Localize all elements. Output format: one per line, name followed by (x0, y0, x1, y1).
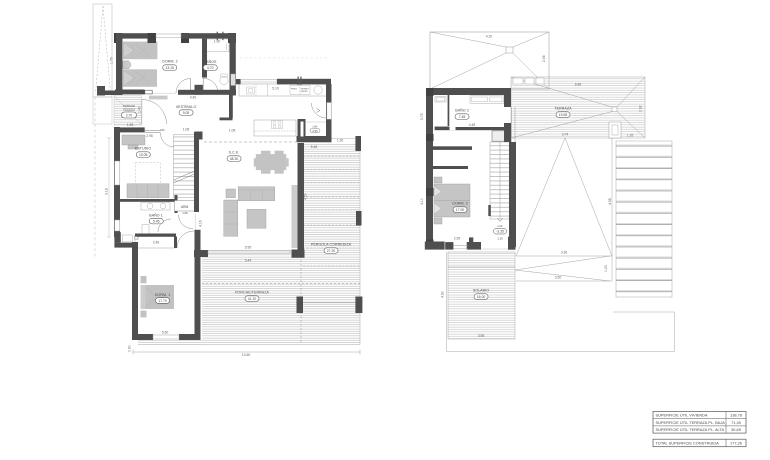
svg-text:7.48: 7.48 (459, 115, 466, 119)
svg-text:3.50: 3.50 (555, 276, 562, 280)
svg-text:6.89: 6.89 (575, 83, 582, 87)
svg-text:SOLARIO: SOLARIO (473, 289, 489, 293)
svg-text:DORM. 2: DORM. 2 (162, 60, 177, 64)
svg-text:2.46: 2.46 (153, 241, 160, 245)
svg-text:FREG: FREG (291, 89, 297, 91)
svg-text:ESTUDIO: ESTUDIO (135, 147, 151, 151)
svg-text:4.16: 4.16 (199, 220, 203, 227)
svg-text:5.48: 5.48 (311, 145, 318, 149)
svg-text:SUPERFICIE ÚTIL TERRAZA PL. BA: SUPERFICIE ÚTIL TERRAZA PL. BAJA (656, 420, 726, 425)
svg-text:SUPERFICIE ÚTIL TERRAZA PL. AL: SUPERFICIE ÚTIL TERRAZA PL. ALTA (656, 427, 725, 432)
svg-text:71,30: 71,30 (731, 420, 742, 425)
svg-text:5.75: 5.75 (420, 113, 424, 120)
svg-text:1.76: 1.76 (110, 57, 114, 64)
svg-text:4.58: 4.58 (608, 198, 612, 205)
svg-text:3.74: 3.74 (562, 133, 569, 137)
svg-text:VESTÍBULO: VESTÍBULO (176, 105, 197, 109)
svg-text:3.95: 3.95 (478, 334, 485, 338)
svg-text:MICRO: MICRO (301, 91, 308, 93)
svg-text:1.90: 1.90 (214, 40, 221, 44)
svg-text:L10: L10 (498, 224, 503, 228)
svg-text:5.10: 5.10 (272, 86, 279, 90)
svg-text:BAÑOS: BAÑOS (204, 59, 217, 64)
svg-text:4.10: 4.10 (420, 198, 424, 205)
svg-text:4.50: 4.50 (304, 193, 308, 200)
svg-text:DORM. 3: DORM. 3 (452, 202, 467, 206)
svg-text:DORM. 1: DORM. 1 (155, 293, 170, 297)
svg-text:138,78: 138,78 (730, 413, 742, 418)
svg-text:48.30: 48.30 (230, 157, 239, 161)
svg-text:19.65: 19.65 (559, 113, 568, 117)
svg-text:TERRAZA: TERRAZA (554, 107, 572, 111)
svg-text:1.40: 1.40 (138, 106, 142, 113)
svg-text:13.60: 13.60 (242, 353, 251, 357)
svg-text:SUPERFICIE ÚTIL VIVIENDA: SUPERFICIE ÚTIL VIVIENDA (656, 413, 708, 418)
svg-text:4.48: 4.48 (469, 123, 476, 127)
svg-text:0.95: 0.95 (312, 129, 318, 133)
svg-text:-3.35: -3.35 (496, 230, 504, 234)
svg-text:1.35: 1.35 (627, 134, 634, 138)
svg-text:10.05: 10.05 (139, 153, 148, 157)
svg-text:PORCHE/TERRAZA: PORCHE/TERRAZA (235, 291, 269, 295)
svg-text:S.C.K.: S.C.K. (229, 151, 240, 155)
svg-text:4.90: 4.90 (441, 291, 445, 298)
svg-text:LAV: LAV (313, 125, 318, 129)
svg-text:1.06: 1.06 (182, 211, 188, 215)
svg-text:1.26: 1.26 (497, 237, 503, 241)
svg-text:BAÑO 3: BAÑO 3 (455, 108, 468, 113)
svg-text:2.70: 2.70 (126, 114, 133, 118)
svg-text:TOTAL SUPERFICIE CONSTRUIDA: TOTAL SUPERFICIE CONSTRUIDA (656, 441, 720, 446)
svg-text:5.45: 5.45 (153, 220, 160, 224)
svg-text:9.05: 9.05 (183, 111, 190, 115)
svg-text:1.30: 1.30 (337, 139, 344, 143)
svg-text:177,26: 177,26 (730, 441, 742, 446)
svg-text:1.08: 1.08 (229, 129, 236, 133)
svg-text:5.95: 5.95 (245, 246, 252, 250)
svg-text:PÉRGOLA CORREDIZA: PÉRGOLA CORREDIZA (311, 242, 352, 247)
svg-text:17.70: 17.70 (158, 299, 167, 303)
svg-text:4.40: 4.40 (190, 96, 197, 100)
svg-text:1.23: 1.23 (604, 265, 608, 272)
svg-text:2.62: 2.62 (639, 105, 643, 112)
svg-text:0.60: 0.60 (128, 345, 132, 352)
svg-text:2.95: 2.95 (454, 237, 461, 241)
svg-text:16.00: 16.00 (477, 295, 486, 299)
svg-text:ACCESO: ACCESO (123, 107, 136, 111)
svg-text:4.20: 4.20 (486, 35, 493, 39)
svg-text:13.15: 13.15 (165, 66, 174, 70)
svg-text:2.96: 2.96 (146, 134, 153, 138)
svg-text:27.20: 27.20 (327, 249, 336, 253)
svg-text:ARM.: ARM. (181, 205, 189, 209)
svg-text:BAÑO 1: BAÑO 1 (149, 213, 162, 218)
svg-text:41.20: 41.20 (248, 297, 257, 301)
svg-text:2.56: 2.56 (542, 55, 546, 62)
svg-text:3.18: 3.18 (105, 188, 109, 195)
svg-text:1.55: 1.55 (127, 123, 134, 127)
svg-text:1.08: 1.08 (183, 127, 190, 131)
svg-text:3.36: 3.36 (561, 251, 568, 255)
svg-text:30,65: 30,65 (731, 427, 741, 432)
svg-text:5.50: 5.50 (162, 330, 169, 334)
svg-text:5.44: 5.44 (245, 259, 252, 263)
svg-text:17.90: 17.90 (456, 208, 465, 212)
svg-text:4.70: 4.70 (207, 66, 214, 70)
svg-text:U/D: U/D (160, 128, 165, 132)
